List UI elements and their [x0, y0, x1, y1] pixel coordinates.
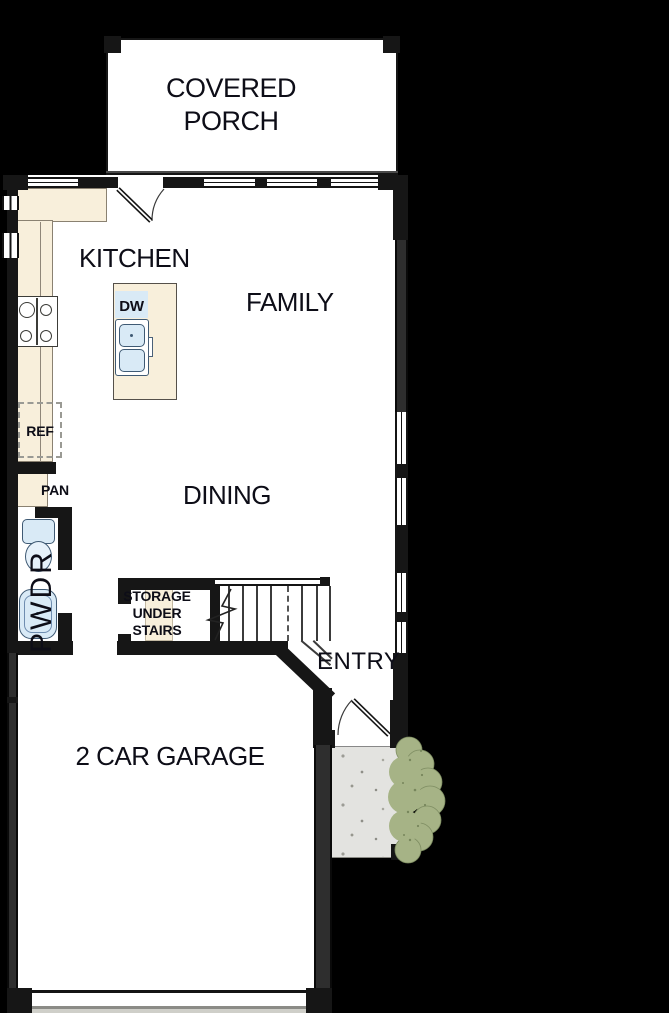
- window: [204, 177, 255, 188]
- wall: [58, 518, 72, 570]
- stove-divider: [36, 298, 38, 345]
- kitchen-counter-top: [17, 188, 107, 222]
- entry-stoop: [330, 746, 406, 858]
- wall: [395, 240, 408, 412]
- window: [395, 573, 408, 612]
- sink-faucet-dot: [130, 334, 133, 337]
- room-label-garage: 2 CAR GARAGE: [62, 742, 278, 772]
- stove-burner: [20, 330, 32, 342]
- room-label-covered-porch: COVERED PORCH: [146, 72, 316, 138]
- front-door-opening: [335, 730, 390, 747]
- room-label-powder: PWDR: [25, 548, 51, 654]
- wall: [395, 612, 408, 622]
- wall: [7, 258, 18, 462]
- sink-handle: [148, 337, 153, 357]
- room-label-storage: STORAGE UNDER STAIRS: [119, 588, 195, 639]
- wall-seam: [7, 697, 18, 703]
- stove-burner: [40, 304, 52, 316]
- window: [331, 177, 378, 188]
- door-post: [390, 730, 408, 748]
- room-label-dining: DINING: [183, 481, 271, 511]
- wall: [35, 507, 72, 518]
- wall: [317, 177, 331, 188]
- fixture-label-dw: DW: [114, 298, 149, 315]
- stairs-side-wall: [210, 580, 220, 641]
- window: [2, 233, 19, 258]
- garage-floor-area: [10, 650, 332, 1010]
- garage-door-panel: [32, 993, 306, 1006]
- stoop-post: [391, 844, 408, 860]
- stair-tread: [270, 586, 272, 641]
- stove-burner: [19, 302, 35, 318]
- window: [267, 177, 317, 188]
- wall: [7, 462, 18, 653]
- garage-wall: [7, 653, 18, 1010]
- wall: [7, 210, 18, 233]
- wall: [78, 177, 118, 188]
- garage-door-sill: [32, 1009, 306, 1013]
- wall: [7, 188, 18, 196]
- stair-railing: [215, 578, 323, 586]
- wall: [7, 462, 56, 474]
- stair-tread: [256, 586, 258, 641]
- porch-post: [383, 36, 400, 53]
- floor-plan: COVERED PORCH KITCHEN FAMILY DINING ENTR…: [0, 0, 669, 1013]
- stair-tread: [242, 586, 244, 641]
- garage-wall: [314, 745, 332, 1010]
- stair-tread: [316, 586, 318, 641]
- stair-tread: [301, 586, 303, 641]
- stair-edge: [329, 586, 331, 641]
- window: [395, 478, 408, 525]
- railing-post: [320, 577, 330, 586]
- fixture-label-ref: REF: [18, 423, 62, 440]
- wall: [7, 988, 32, 1013]
- wall: [395, 525, 408, 573]
- room-label-entry: ENTRY: [317, 648, 400, 676]
- wall: [306, 988, 332, 1013]
- porch-floor-line: [106, 171, 398, 173]
- stair-tread: [228, 586, 230, 641]
- porch-door-opening: [118, 176, 163, 188]
- sink-basin: [119, 349, 145, 372]
- fixture-label-pan: PAN: [41, 482, 69, 499]
- wall: [255, 177, 267, 188]
- wall: [395, 464, 408, 478]
- room-label-family: FAMILY: [246, 288, 334, 318]
- room-label-kitchen: KITCHEN: [79, 244, 190, 274]
- wall: [393, 175, 408, 240]
- window: [395, 412, 408, 464]
- porch-post: [104, 36, 121, 53]
- window: [2, 196, 19, 210]
- wall: [117, 641, 288, 655]
- stair-tread-dashed: [287, 586, 289, 641]
- stove-burner: [40, 330, 52, 342]
- wall: [163, 177, 204, 188]
- window: [28, 177, 78, 188]
